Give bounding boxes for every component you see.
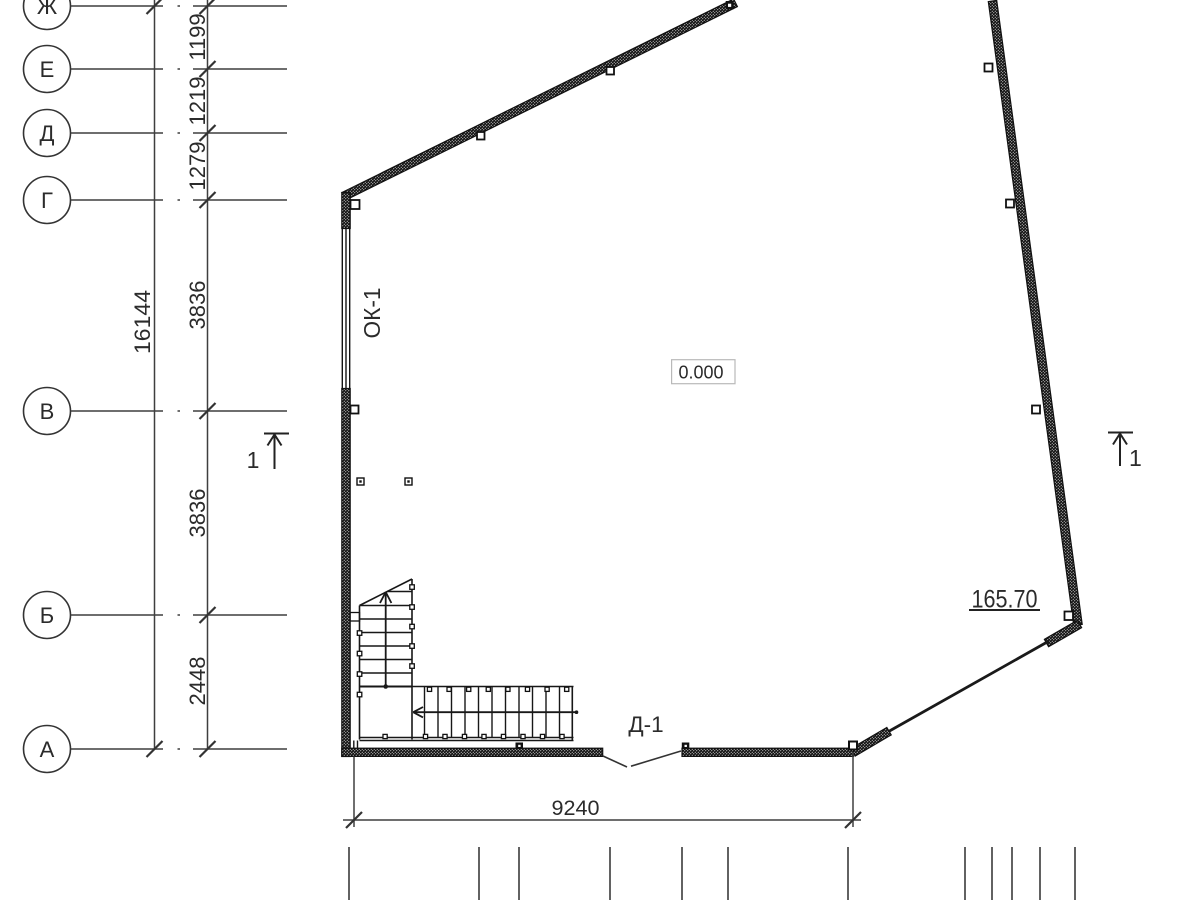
svg-text:А: А [40,737,55,762]
svg-text:1: 1 [247,447,260,473]
svg-text:1219: 1219 [185,77,210,126]
svg-text:1: 1 [1129,445,1142,471]
svg-text:1279: 1279 [185,142,210,191]
svg-text:Г: Г [41,188,53,213]
svg-text:16144: 16144 [130,290,155,354]
svg-text:0.000: 0.000 [679,362,724,383]
svg-text:Ж: Ж [37,0,58,19]
svg-text:В: В [40,399,55,424]
svg-text:3836: 3836 [185,489,210,538]
svg-text:Е: Е [40,57,55,82]
svg-text:Д: Д [40,121,55,146]
svg-text:ОК-1: ОК-1 [359,288,385,339]
svg-text:1199: 1199 [185,13,210,60]
svg-text:Д-1: Д-1 [628,712,663,737]
svg-text:9240: 9240 [552,797,600,820]
svg-text:Б: Б [40,603,54,628]
svg-text:2448: 2448 [185,657,210,706]
svg-text:3836: 3836 [185,281,210,330]
